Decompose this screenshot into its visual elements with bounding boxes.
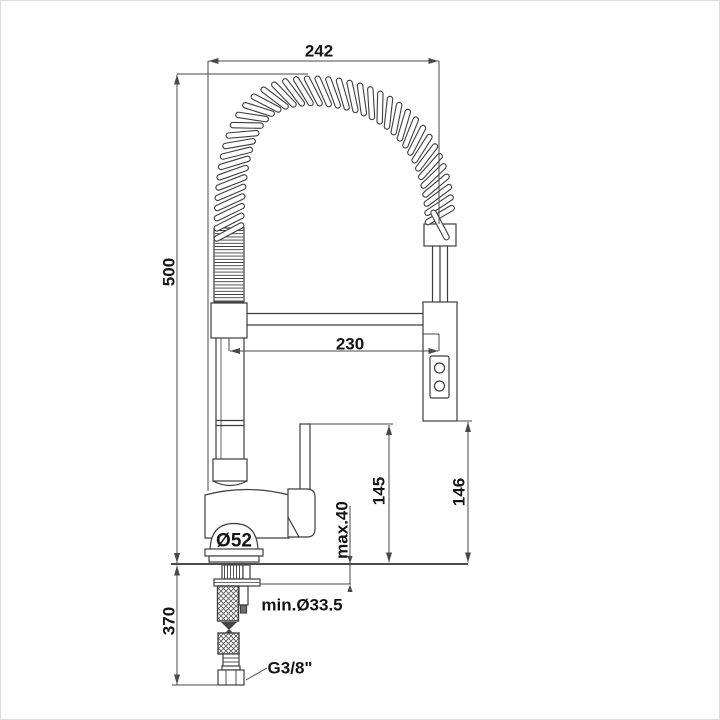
- spray-head: [423, 224, 457, 421]
- left-collar: [211, 303, 247, 338]
- dim-label-deck-thickness: max.40: [334, 501, 351, 559]
- spring-coil-spout: [213, 75, 455, 242]
- technical-drawing: 242 500 230 145 146 max.40 Ø52 min.Ø33.5…: [0, 0, 720, 720]
- spout-column: [211, 303, 247, 486]
- dim-label-mounting-hole: min.Ø33.5: [261, 597, 342, 614]
- handle-lever: [288, 424, 315, 537]
- support-bar: [247, 314, 423, 326]
- faucet-line-art: [1, 1, 719, 719]
- spray-buttons: [430, 356, 449, 398]
- dim-label-overall-height: 500: [161, 258, 178, 286]
- dim-label-spout-width: 242: [305, 43, 333, 60]
- dim-label-hose-drop: 370: [161, 607, 178, 635]
- dim-label-thread-size: G3/8": [268, 660, 313, 677]
- hose-break-mark: [221, 622, 237, 630]
- thread-leader-line: [246, 668, 267, 680]
- dim-label-base-diameter: Ø52: [216, 532, 252, 551]
- hose-nut: [218, 666, 244, 685]
- dim-label-spray-height: 146: [451, 478, 468, 506]
- dim-label-handle-height: 145: [371, 477, 388, 505]
- dim-label-arm-reach: 230: [336, 336, 364, 353]
- mounting-stud: [239, 586, 248, 605]
